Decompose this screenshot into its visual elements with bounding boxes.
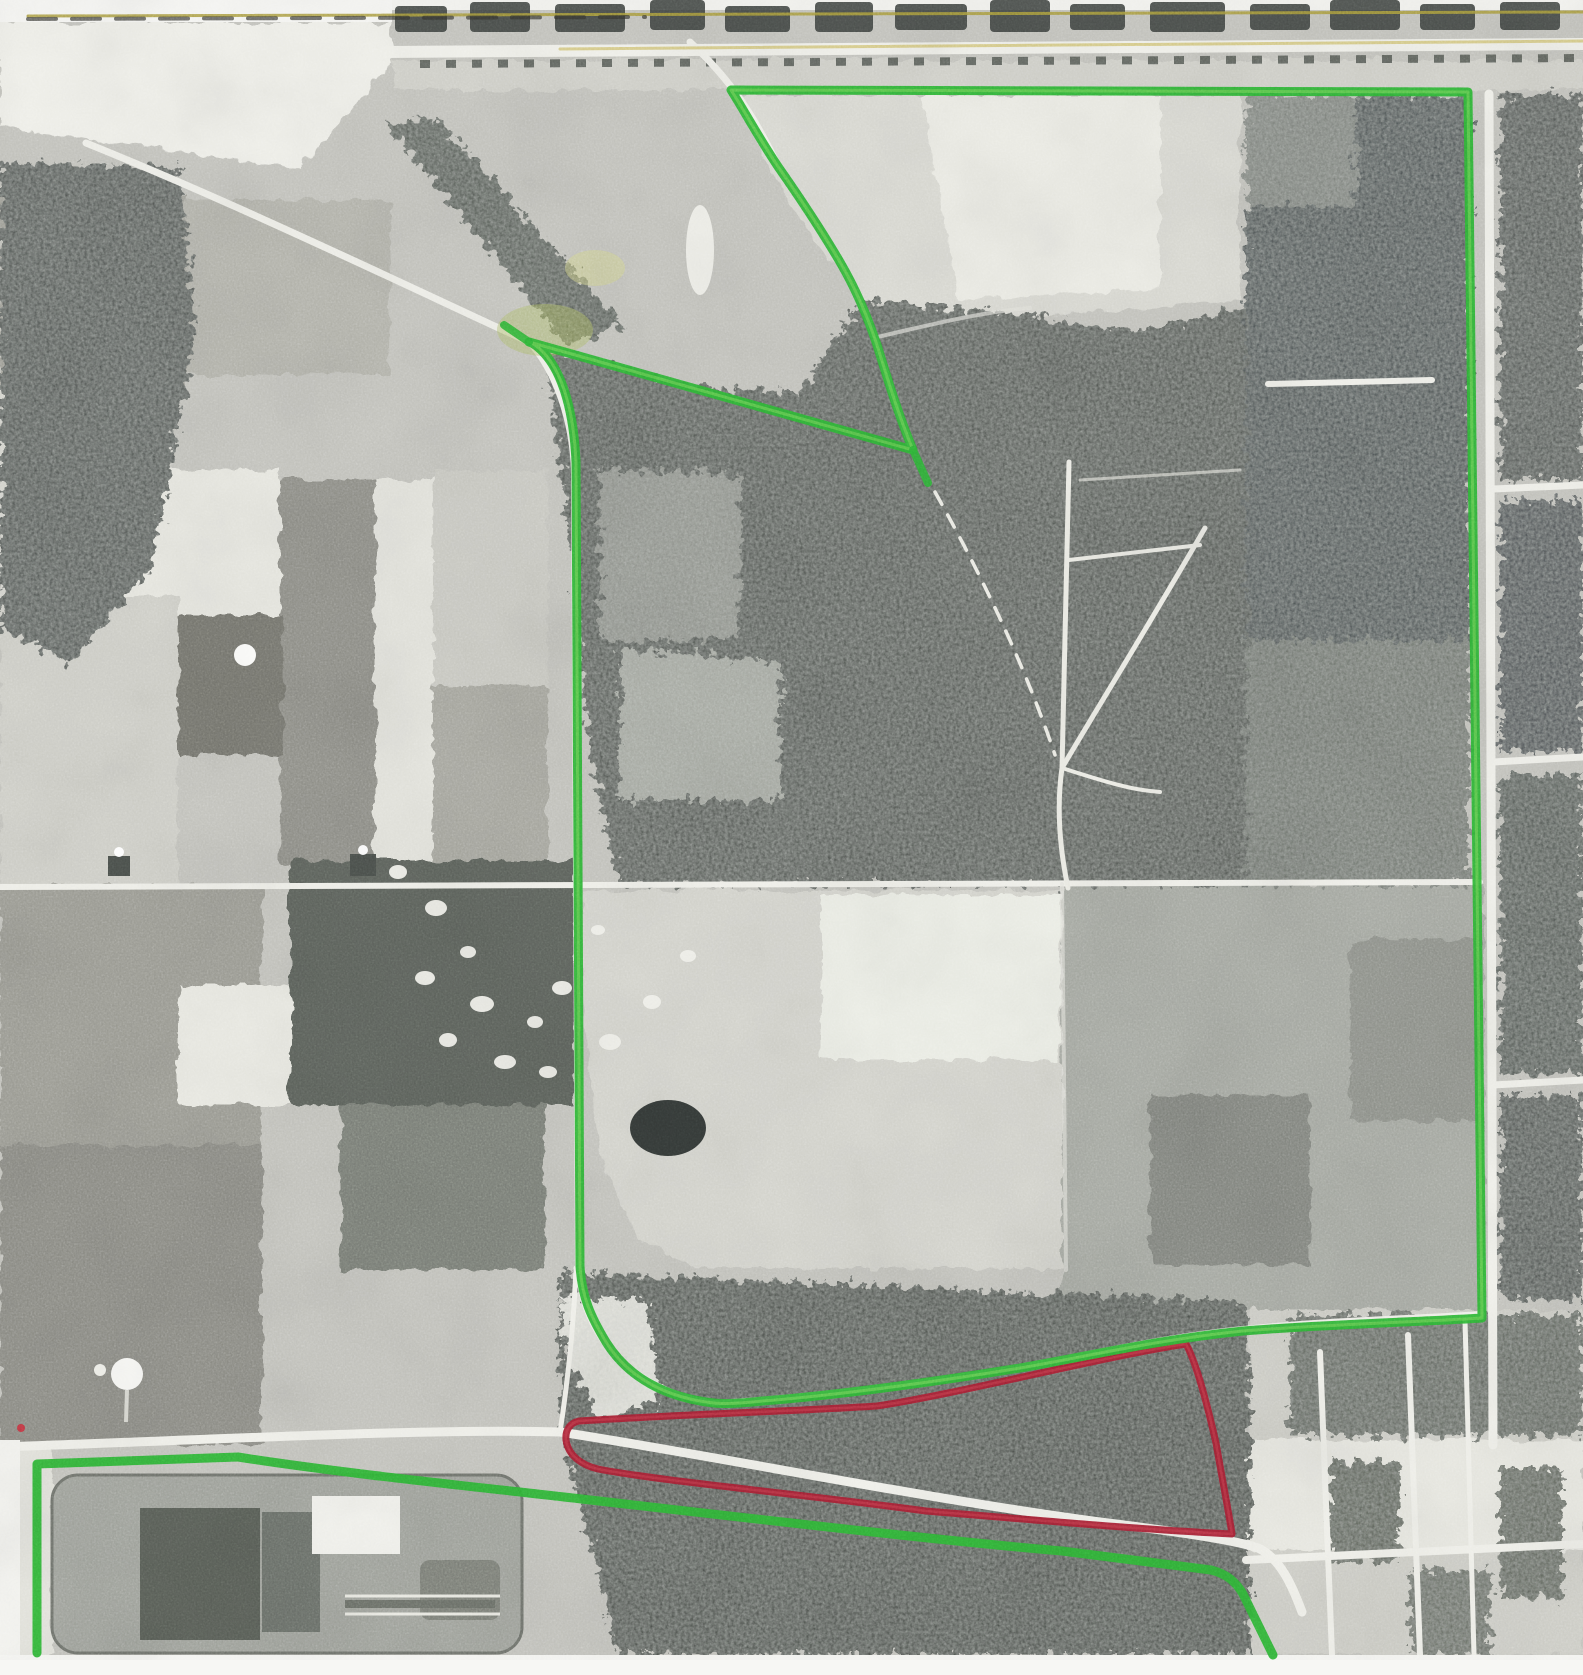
scan-grain-blotch: [0, 0, 1583, 1660]
scanned-aerial-photo-page: [0, 0, 1583, 1675]
aerial-photo: [0, 0, 1583, 1675]
